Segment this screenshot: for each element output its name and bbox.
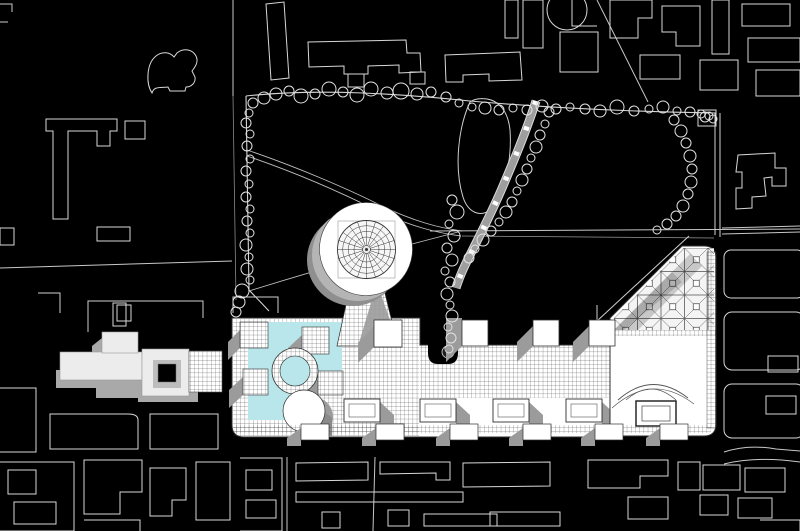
skylight-4 bbox=[566, 399, 602, 422]
bot-pavilion-3 bbox=[450, 424, 478, 440]
roof-pavilion-4 bbox=[589, 320, 615, 346]
leftbldg-courtyard bbox=[158, 364, 176, 382]
bot-pavilion-5 bbox=[595, 424, 623, 440]
roof-pavilion-2 bbox=[462, 320, 488, 346]
rotunda-hub-dot bbox=[365, 248, 368, 251]
bot-pavilion-2 bbox=[376, 424, 404, 440]
pool-sq-A bbox=[240, 322, 268, 348]
wing-edge-strip bbox=[707, 252, 716, 428]
bot-pavilion-6 bbox=[660, 424, 688, 440]
pool-sq-C bbox=[243, 369, 268, 395]
roof-pavilion-3 bbox=[533, 320, 559, 346]
pool-sq-D bbox=[318, 371, 343, 395]
bot-pavilion-1 bbox=[301, 424, 329, 440]
skylight-2 bbox=[420, 399, 456, 422]
leftbldg-head bbox=[102, 332, 138, 353]
leftbldg-connector-grid bbox=[189, 351, 222, 392]
bot-pavilion-4 bbox=[523, 424, 551, 440]
pool-sq-B bbox=[302, 327, 329, 354]
fountain-ring-inner bbox=[280, 356, 310, 386]
leftbldg-bar bbox=[60, 352, 142, 380]
roof-pavilion-1 bbox=[374, 320, 402, 347]
site-plan-page bbox=[0, 0, 800, 531]
skylight-1 bbox=[344, 399, 380, 422]
site-plan-canvas bbox=[0, 0, 800, 531]
wing-coffer-base bbox=[613, 330, 716, 336]
skylight-3 bbox=[493, 399, 529, 422]
